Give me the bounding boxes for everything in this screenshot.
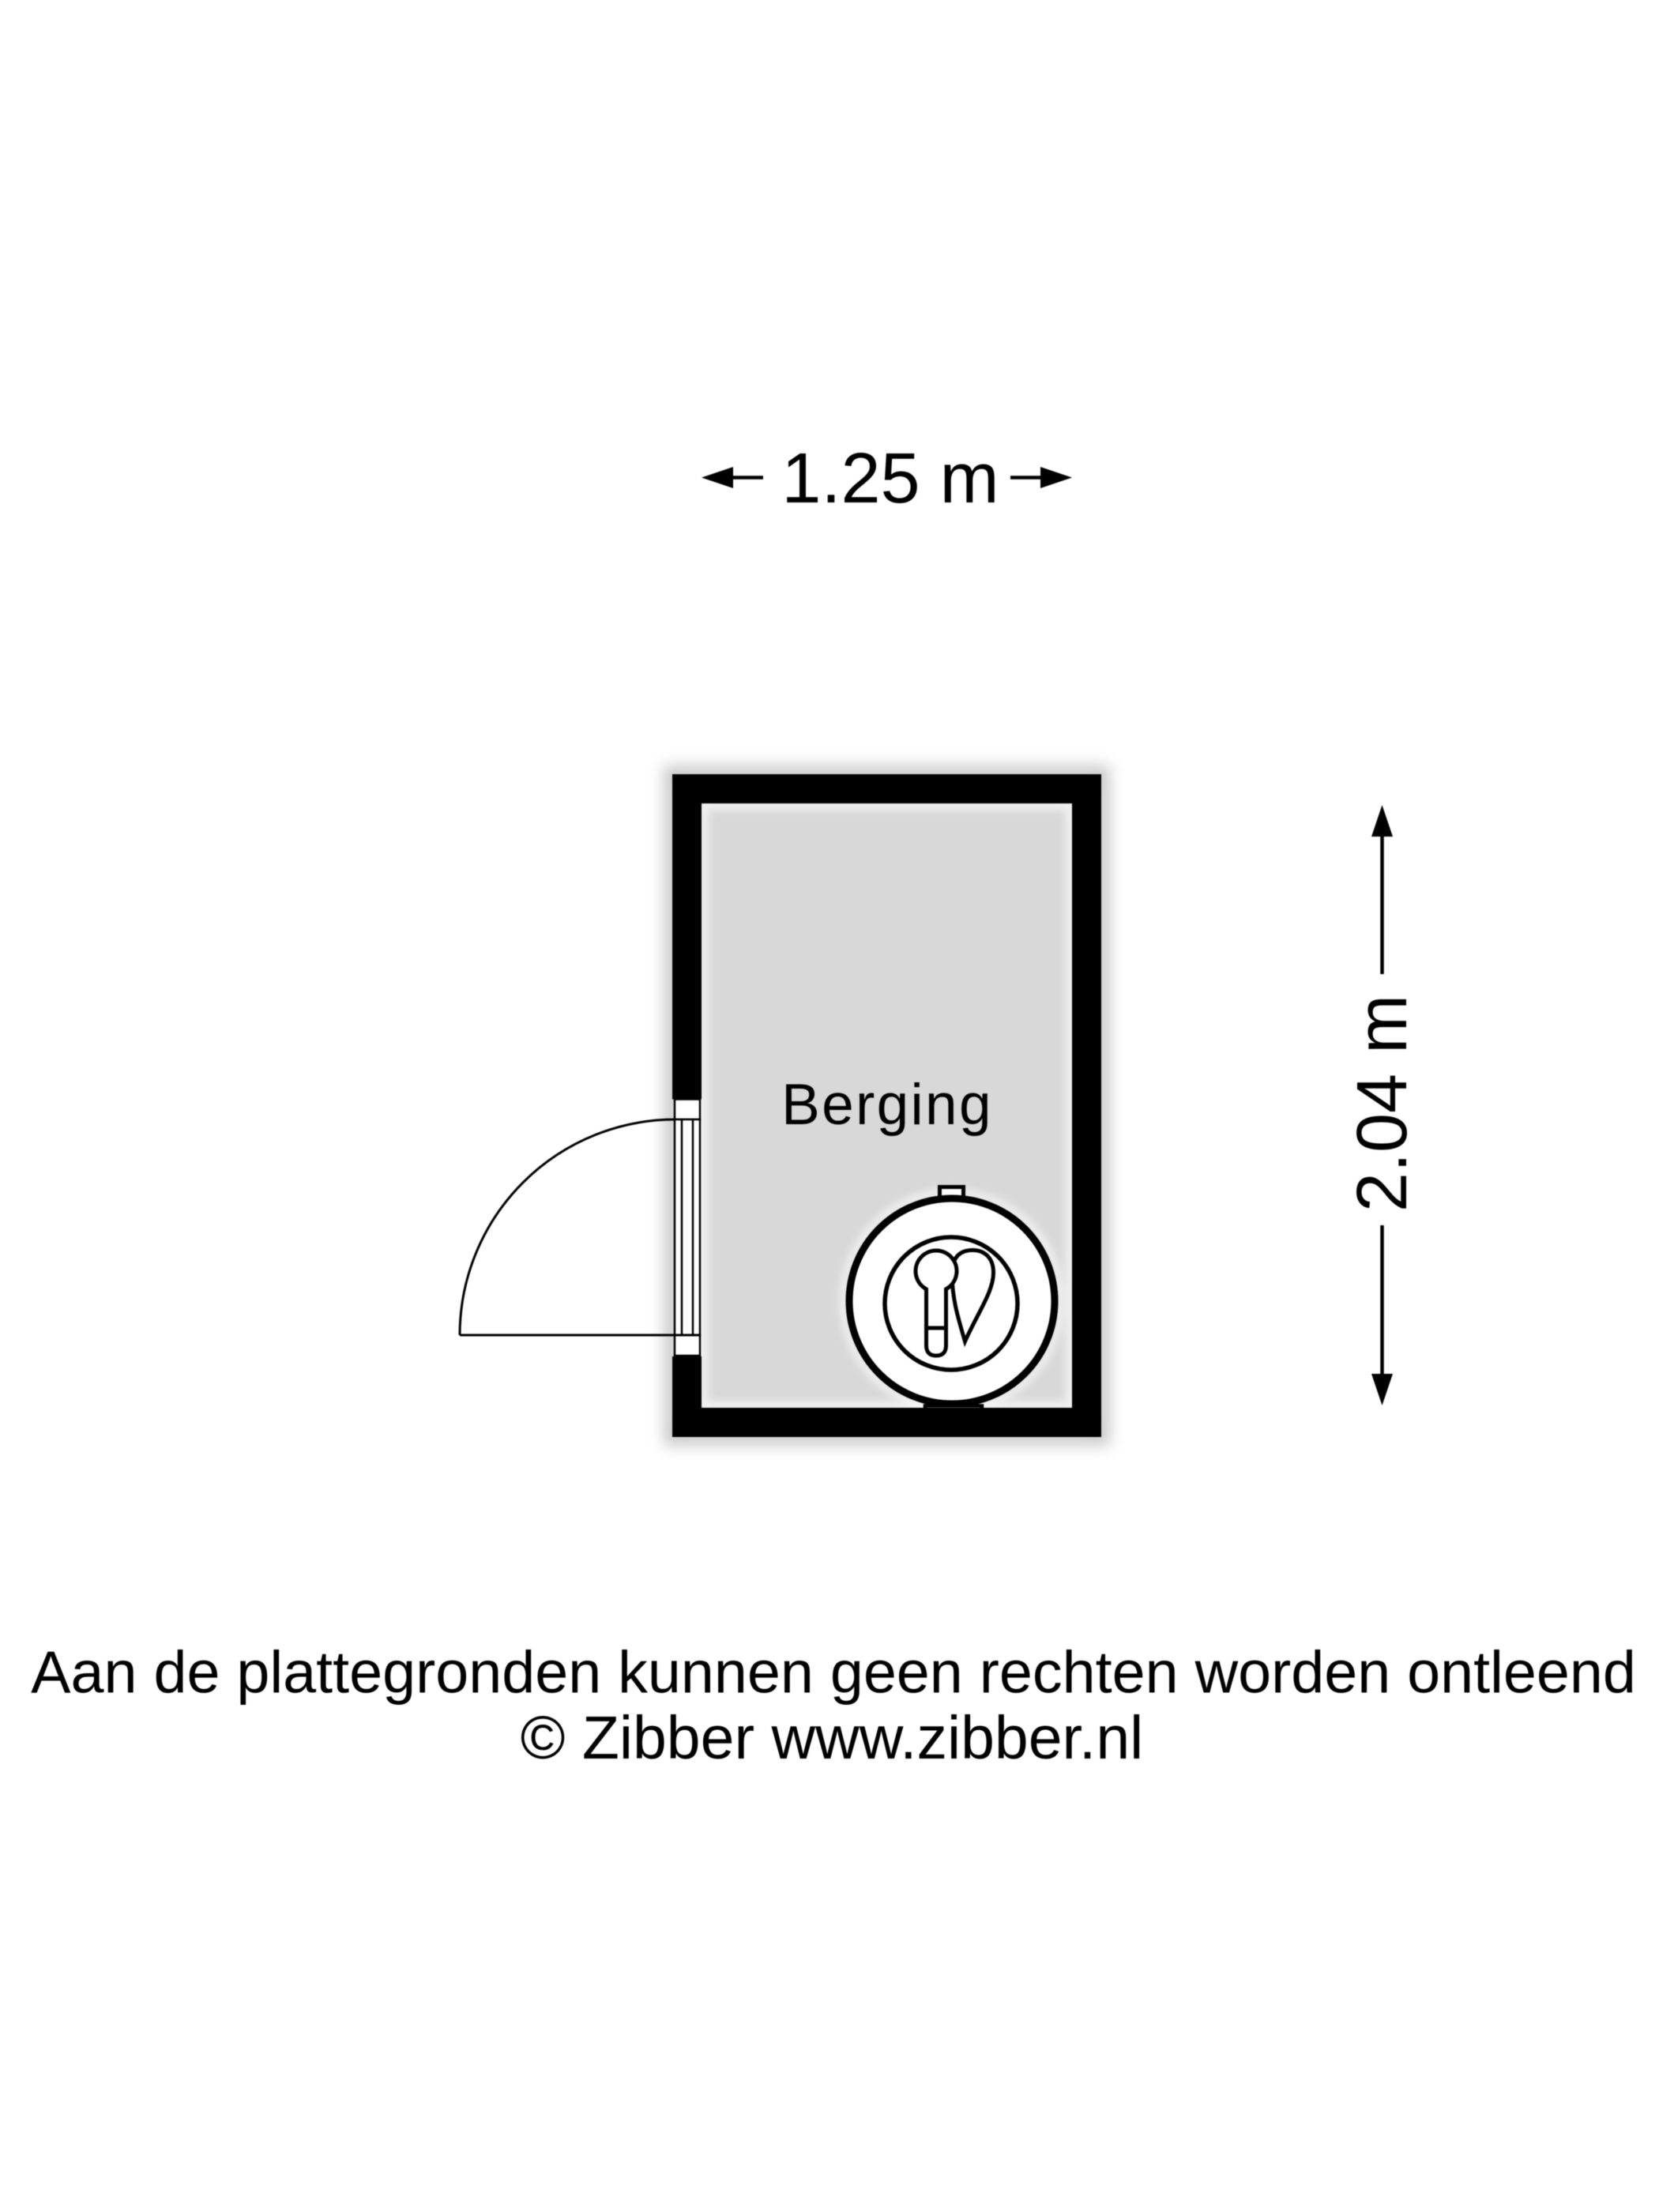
svg-text:2.04 m: 2.04 m [1343, 995, 1422, 1212]
svg-text:1.25 m: 1.25 m [781, 439, 999, 518]
svg-text:Aan de plattegronden kunnen ge: Aan de plattegronden kunnen geen rechten… [31, 1639, 1636, 1706]
svg-text:© Zibber www.zibber.nl: © Zibber www.zibber.nl [521, 1704, 1144, 1772]
svg-text:Berging: Berging [781, 1073, 993, 1137]
